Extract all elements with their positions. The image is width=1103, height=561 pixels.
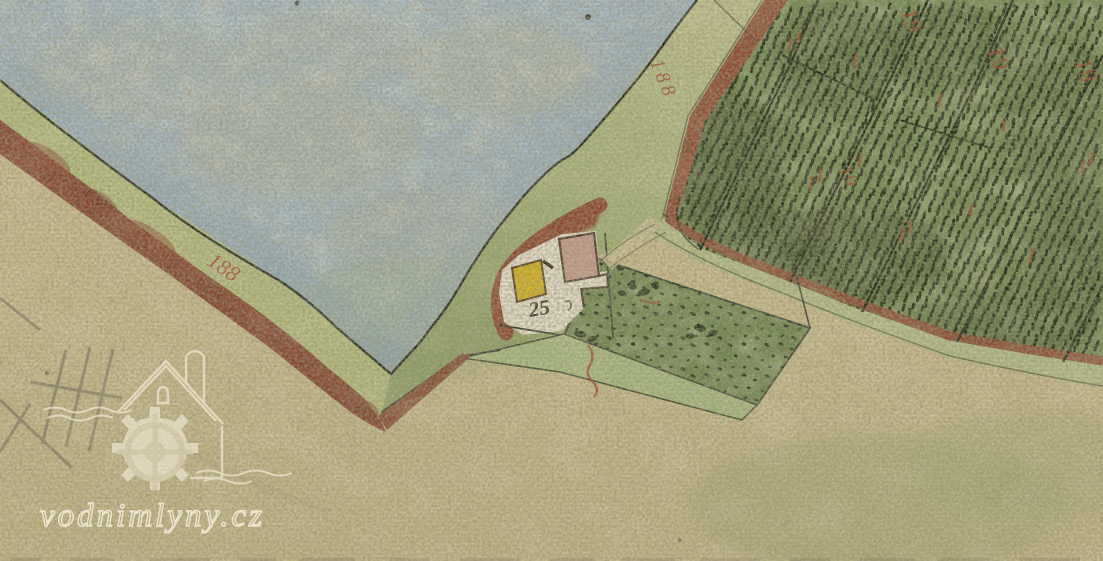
svg-text:vodnimlyny.cz: vodnimlyny.cz <box>40 498 265 534</box>
